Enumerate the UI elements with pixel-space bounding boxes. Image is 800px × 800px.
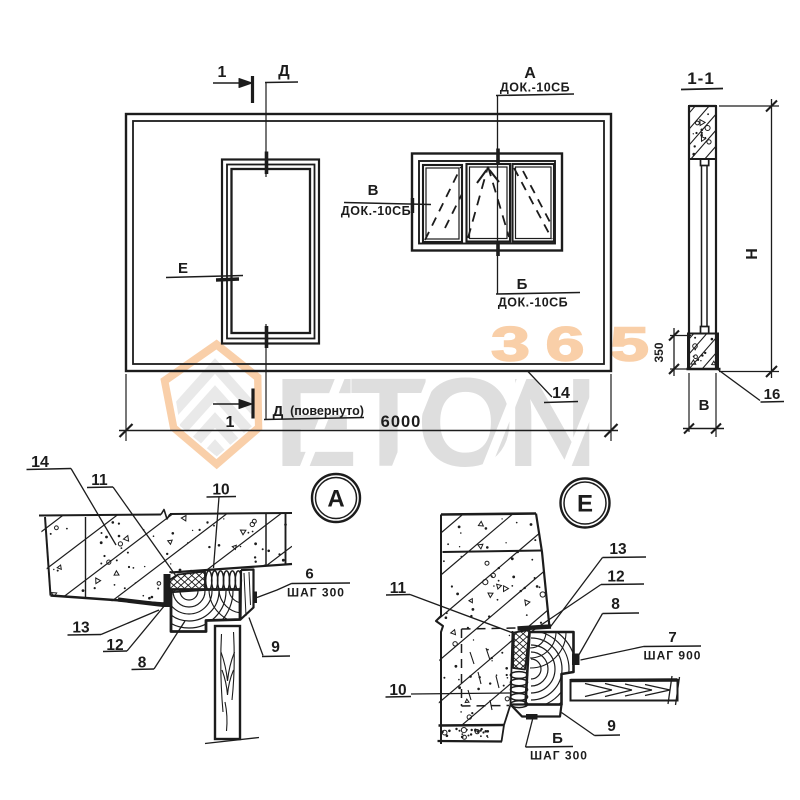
svg-text:ДОК.-10СБ: ДОК.-10СБ [341, 204, 411, 218]
svg-text:Б: Б [552, 730, 563, 747]
svg-text:1: 1 [218, 64, 227, 81]
svg-text:9: 9 [607, 718, 616, 735]
svg-text:(повернуто): (повернуто) [290, 404, 364, 418]
svg-text:350: 350 [652, 342, 666, 362]
svg-text:А: А [327, 486, 344, 513]
svg-text:1-1: 1-1 [687, 69, 715, 88]
svg-text:1: 1 [226, 414, 235, 431]
svg-text:Е: Е [178, 260, 188, 277]
svg-text:12: 12 [607, 569, 624, 586]
svg-text:Е: Е [577, 491, 593, 518]
svg-text:ШАГ 300: ШАГ 300 [287, 586, 345, 600]
svg-text:Б: Б [517, 276, 528, 293]
svg-text:6000: 6000 [381, 413, 422, 431]
svg-text:ДОК.-10СБ: ДОК.-10СБ [500, 81, 570, 95]
svg-text:9: 9 [271, 639, 280, 656]
svg-text:Д: Д [278, 63, 290, 80]
svg-text:ШАГ 900: ШАГ 900 [644, 649, 702, 663]
svg-text:14: 14 [552, 385, 570, 402]
svg-text:7: 7 [668, 629, 676, 646]
svg-text:Д: Д [273, 403, 284, 420]
svg-text:ШАГ 300: ШАГ 300 [530, 749, 588, 763]
svg-text:13: 13 [609, 541, 627, 558]
svg-text:5: 5 [610, 319, 649, 372]
svg-text:А: А [524, 65, 536, 82]
svg-text:16: 16 [764, 386, 781, 403]
svg-text:6: 6 [305, 566, 313, 583]
svg-text:8: 8 [611, 596, 620, 613]
svg-text:13: 13 [72, 620, 90, 637]
svg-text:В: В [699, 397, 710, 414]
svg-text:ДОК.-10СБ: ДОК.-10СБ [498, 296, 568, 310]
svg-text:Н: Н [744, 248, 761, 260]
svg-text:В: В [368, 182, 379, 199]
